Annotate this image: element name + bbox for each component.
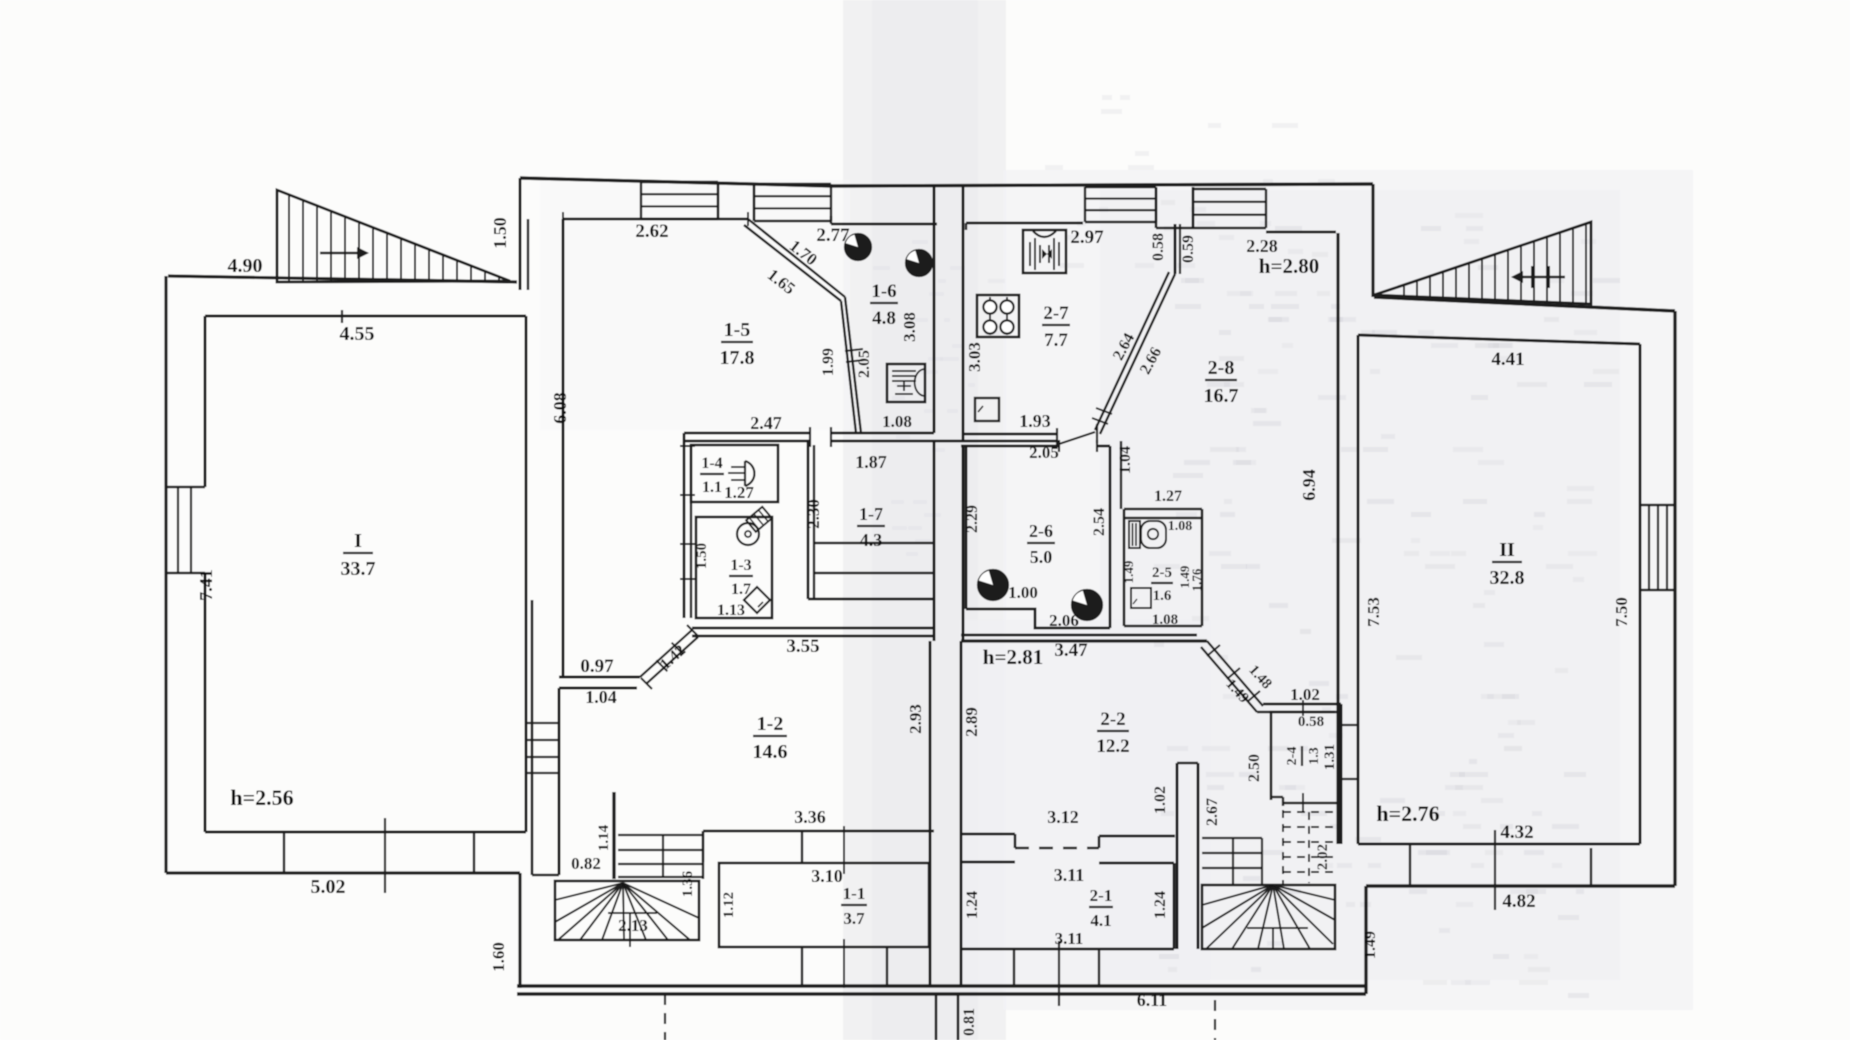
svg-text:1-3: 1-3 bbox=[730, 557, 751, 574]
svg-text:1.27: 1.27 bbox=[724, 483, 754, 502]
svg-text:1.87: 1.87 bbox=[855, 452, 887, 472]
svg-text:2.29: 2.29 bbox=[964, 505, 981, 533]
svg-text:1.12: 1.12 bbox=[721, 892, 737, 918]
svg-text:2.97: 2.97 bbox=[1070, 227, 1104, 248]
svg-text:2.30: 2.30 bbox=[804, 499, 823, 529]
svg-text:1.02: 1.02 bbox=[1290, 685, 1320, 704]
svg-text:2.54: 2.54 bbox=[1091, 508, 1108, 536]
svg-text:4.3: 4.3 bbox=[860, 530, 883, 550]
svg-text:2-7: 2-7 bbox=[1043, 303, 1069, 324]
svg-text:2.13: 2.13 bbox=[618, 916, 648, 935]
svg-text:4.90: 4.90 bbox=[228, 255, 263, 277]
svg-text:1.08: 1.08 bbox=[1168, 519, 1193, 534]
svg-text:6.94: 6.94 bbox=[1299, 469, 1319, 501]
svg-text:4.41: 4.41 bbox=[1491, 349, 1524, 370]
svg-text:1.02: 1.02 bbox=[1152, 786, 1169, 814]
svg-text:1.50: 1.50 bbox=[694, 543, 710, 569]
svg-text:3.55: 3.55 bbox=[786, 636, 819, 657]
svg-text:6.11: 6.11 bbox=[1137, 990, 1168, 1010]
svg-text:4.1: 4.1 bbox=[1090, 911, 1111, 930]
svg-text:3.03: 3.03 bbox=[965, 342, 984, 372]
svg-text:2.50: 2.50 bbox=[1246, 754, 1263, 782]
svg-text:3.47: 3.47 bbox=[1054, 640, 1088, 661]
svg-text:2.62: 2.62 bbox=[635, 221, 668, 242]
svg-text:1.04: 1.04 bbox=[1117, 446, 1134, 474]
svg-text:1.14: 1.14 bbox=[596, 824, 612, 851]
svg-text:2.93: 2.93 bbox=[906, 704, 925, 734]
svg-text:12.2: 12.2 bbox=[1096, 736, 1129, 757]
svg-text:3.08: 3.08 bbox=[900, 312, 919, 342]
svg-text:32.8: 32.8 bbox=[1490, 567, 1525, 589]
svg-text:14.6: 14.6 bbox=[753, 741, 788, 763]
svg-text:II: II bbox=[1499, 539, 1515, 561]
svg-text:4.55: 4.55 bbox=[340, 323, 375, 345]
svg-text:2.05: 2.05 bbox=[856, 350, 873, 378]
svg-text:4.32: 4.32 bbox=[1500, 822, 1533, 843]
svg-text:0.97: 0.97 bbox=[580, 656, 614, 677]
svg-text:1-5: 1-5 bbox=[724, 319, 751, 341]
svg-text:3.11: 3.11 bbox=[1055, 929, 1084, 948]
svg-text:h=2.76: h=2.76 bbox=[1376, 801, 1439, 826]
svg-text:h=2.81: h=2.81 bbox=[983, 645, 1043, 669]
svg-text:1.27: 1.27 bbox=[1154, 488, 1182, 505]
svg-text:0.58: 0.58 bbox=[1298, 714, 1324, 730]
svg-text:16.7: 16.7 bbox=[1204, 385, 1239, 407]
svg-text:2.89: 2.89 bbox=[962, 707, 981, 737]
svg-text:1-6: 1-6 bbox=[871, 281, 896, 302]
svg-text:7.50: 7.50 bbox=[1612, 597, 1631, 627]
svg-text:1.93: 1.93 bbox=[1019, 411, 1051, 431]
svg-text:I: I bbox=[354, 530, 362, 552]
svg-text:0.82: 0.82 bbox=[571, 854, 601, 873]
svg-text:2.67: 2.67 bbox=[1204, 798, 1221, 826]
svg-text:4.82: 4.82 bbox=[1502, 891, 1535, 912]
svg-text:6.08: 6.08 bbox=[550, 392, 570, 424]
svg-text:1.08: 1.08 bbox=[882, 412, 912, 431]
svg-text:4.8: 4.8 bbox=[872, 308, 896, 329]
svg-text:2-4: 2-4 bbox=[1285, 747, 1300, 766]
svg-text:0.58: 0.58 bbox=[1150, 233, 1167, 261]
svg-text:1.76: 1.76 bbox=[1189, 568, 1204, 591]
svg-text:17.8: 17.8 bbox=[720, 347, 755, 369]
svg-text:h=2.80: h=2.80 bbox=[1259, 254, 1319, 278]
svg-text:3.7: 3.7 bbox=[843, 909, 865, 928]
svg-text:h=2.56: h=2.56 bbox=[230, 785, 293, 810]
svg-text:3.11: 3.11 bbox=[1054, 865, 1085, 885]
svg-text:7.7: 7.7 bbox=[1044, 330, 1068, 351]
svg-text:5.02: 5.02 bbox=[311, 876, 346, 898]
svg-text:2-8: 2-8 bbox=[1208, 357, 1235, 379]
svg-text:1.6: 1.6 bbox=[1153, 588, 1172, 604]
svg-text:2-6: 2-6 bbox=[1029, 521, 1053, 541]
svg-text:33.7: 33.7 bbox=[341, 558, 376, 580]
svg-text:2.05: 2.05 bbox=[1029, 443, 1059, 462]
svg-text:1.99: 1.99 bbox=[820, 348, 837, 376]
svg-text:2-5: 2-5 bbox=[1152, 565, 1172, 581]
svg-text:2.28: 2.28 bbox=[1246, 236, 1278, 256]
svg-text:1.04: 1.04 bbox=[585, 687, 617, 707]
svg-text:1-7: 1-7 bbox=[859, 504, 883, 524]
svg-text:1.49: 1.49 bbox=[1121, 560, 1136, 583]
svg-text:1.24: 1.24 bbox=[1152, 891, 1169, 919]
svg-text:2.47: 2.47 bbox=[750, 413, 782, 433]
svg-text:3.36: 3.36 bbox=[794, 807, 826, 827]
svg-text:1-4: 1-4 bbox=[701, 455, 722, 472]
svg-text:1.49: 1.49 bbox=[1362, 931, 1379, 959]
svg-text:2.02: 2.02 bbox=[1315, 844, 1331, 870]
svg-text:1.1: 1.1 bbox=[702, 479, 722, 496]
svg-text:3.12: 3.12 bbox=[1047, 807, 1079, 827]
svg-text:1.31: 1.31 bbox=[1322, 744, 1338, 770]
svg-text:1.08: 1.08 bbox=[1152, 612, 1178, 628]
svg-text:1.50: 1.50 bbox=[490, 217, 510, 249]
svg-text:2.06: 2.06 bbox=[1049, 611, 1079, 630]
svg-text:5.0: 5.0 bbox=[1030, 547, 1053, 567]
svg-text:2-2: 2-2 bbox=[1100, 709, 1125, 730]
svg-text:1.24: 1.24 bbox=[964, 891, 981, 919]
svg-text:1.3: 1.3 bbox=[1307, 747, 1322, 765]
svg-text:2-1: 2-1 bbox=[1090, 886, 1113, 905]
svg-text:1-1: 1-1 bbox=[843, 884, 866, 903]
svg-text:1.60: 1.60 bbox=[489, 942, 508, 972]
svg-text:0.59: 0.59 bbox=[1180, 235, 1197, 263]
svg-text:1.13: 1.13 bbox=[717, 602, 745, 619]
svg-text:7.41: 7.41 bbox=[196, 569, 216, 601]
svg-text:1.00: 1.00 bbox=[1008, 583, 1038, 602]
svg-text:2.77: 2.77 bbox=[816, 225, 850, 246]
svg-text:3.10: 3.10 bbox=[811, 866, 843, 886]
svg-text:7.53: 7.53 bbox=[1364, 597, 1383, 627]
svg-text:0.81: 0.81 bbox=[961, 1008, 978, 1036]
svg-text:1.7: 1.7 bbox=[731, 581, 751, 598]
svg-text:1.36: 1.36 bbox=[680, 870, 696, 897]
svg-text:1-2: 1-2 bbox=[757, 713, 784, 735]
